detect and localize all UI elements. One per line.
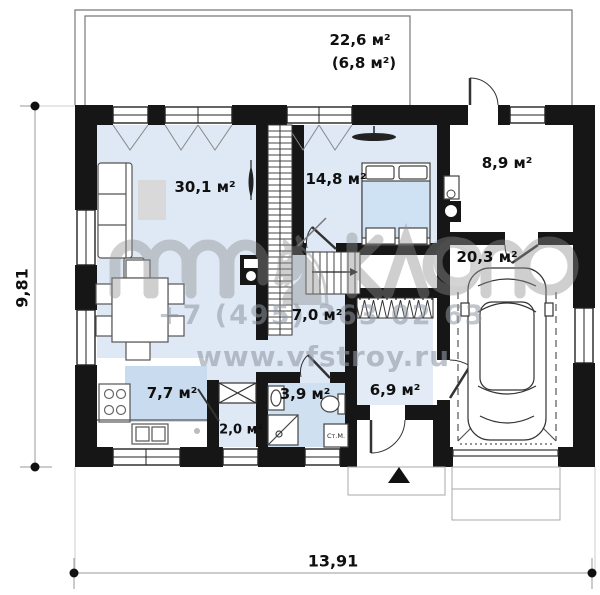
overall-height-label: 9,81: [13, 268, 32, 307]
garage-door: [453, 450, 558, 456]
terrace-area-label: 22,6 м²: [329, 31, 390, 49]
bed: [362, 163, 430, 245]
coffee-table: [138, 180, 166, 220]
bathroom-area-label: 3,9 м²: [280, 385, 331, 403]
floor-plan-drawing: ♞: [0, 0, 600, 595]
vent-shaft: [219, 383, 256, 403]
stove: [99, 384, 130, 422]
kitchen-area-label: 7,7 м²: [147, 384, 198, 402]
boiler-unit: [442, 176, 461, 222]
floor-boiler-room: [450, 125, 573, 232]
pantry-area-label: 2,0 м²: [219, 423, 263, 438]
boiler-room-area-label: 8,9 м²: [482, 154, 533, 172]
bedroom-area-label: 14,8 м²: [305, 170, 366, 188]
entrance-arrow-icon: [388, 467, 410, 483]
terrace-door: [470, 78, 498, 105]
overall-width-label: 13,91: [308, 552, 359, 571]
hallway-area-label: 7,0 м²: [292, 306, 343, 324]
garage-area-label: 20,3 м²: [456, 248, 517, 266]
car-mirror-right: [545, 303, 553, 316]
living-room-area-label: 30,1 м²: [174, 178, 235, 196]
washing-machine-label: Ст.М.: [327, 432, 345, 440]
entrance-area-label: 6,9 м²: [370, 381, 421, 399]
watermark-website: www.vfstroy.ru: [196, 340, 450, 373]
terrace-outline: [75, 10, 572, 105]
floor-plan: ♞ +7 (495) 363 02 63 www.vfstroy.ru 22,6…: [0, 0, 600, 595]
terrace-note-label: (6,8 м²): [332, 54, 396, 72]
porch-step: [348, 467, 560, 520]
